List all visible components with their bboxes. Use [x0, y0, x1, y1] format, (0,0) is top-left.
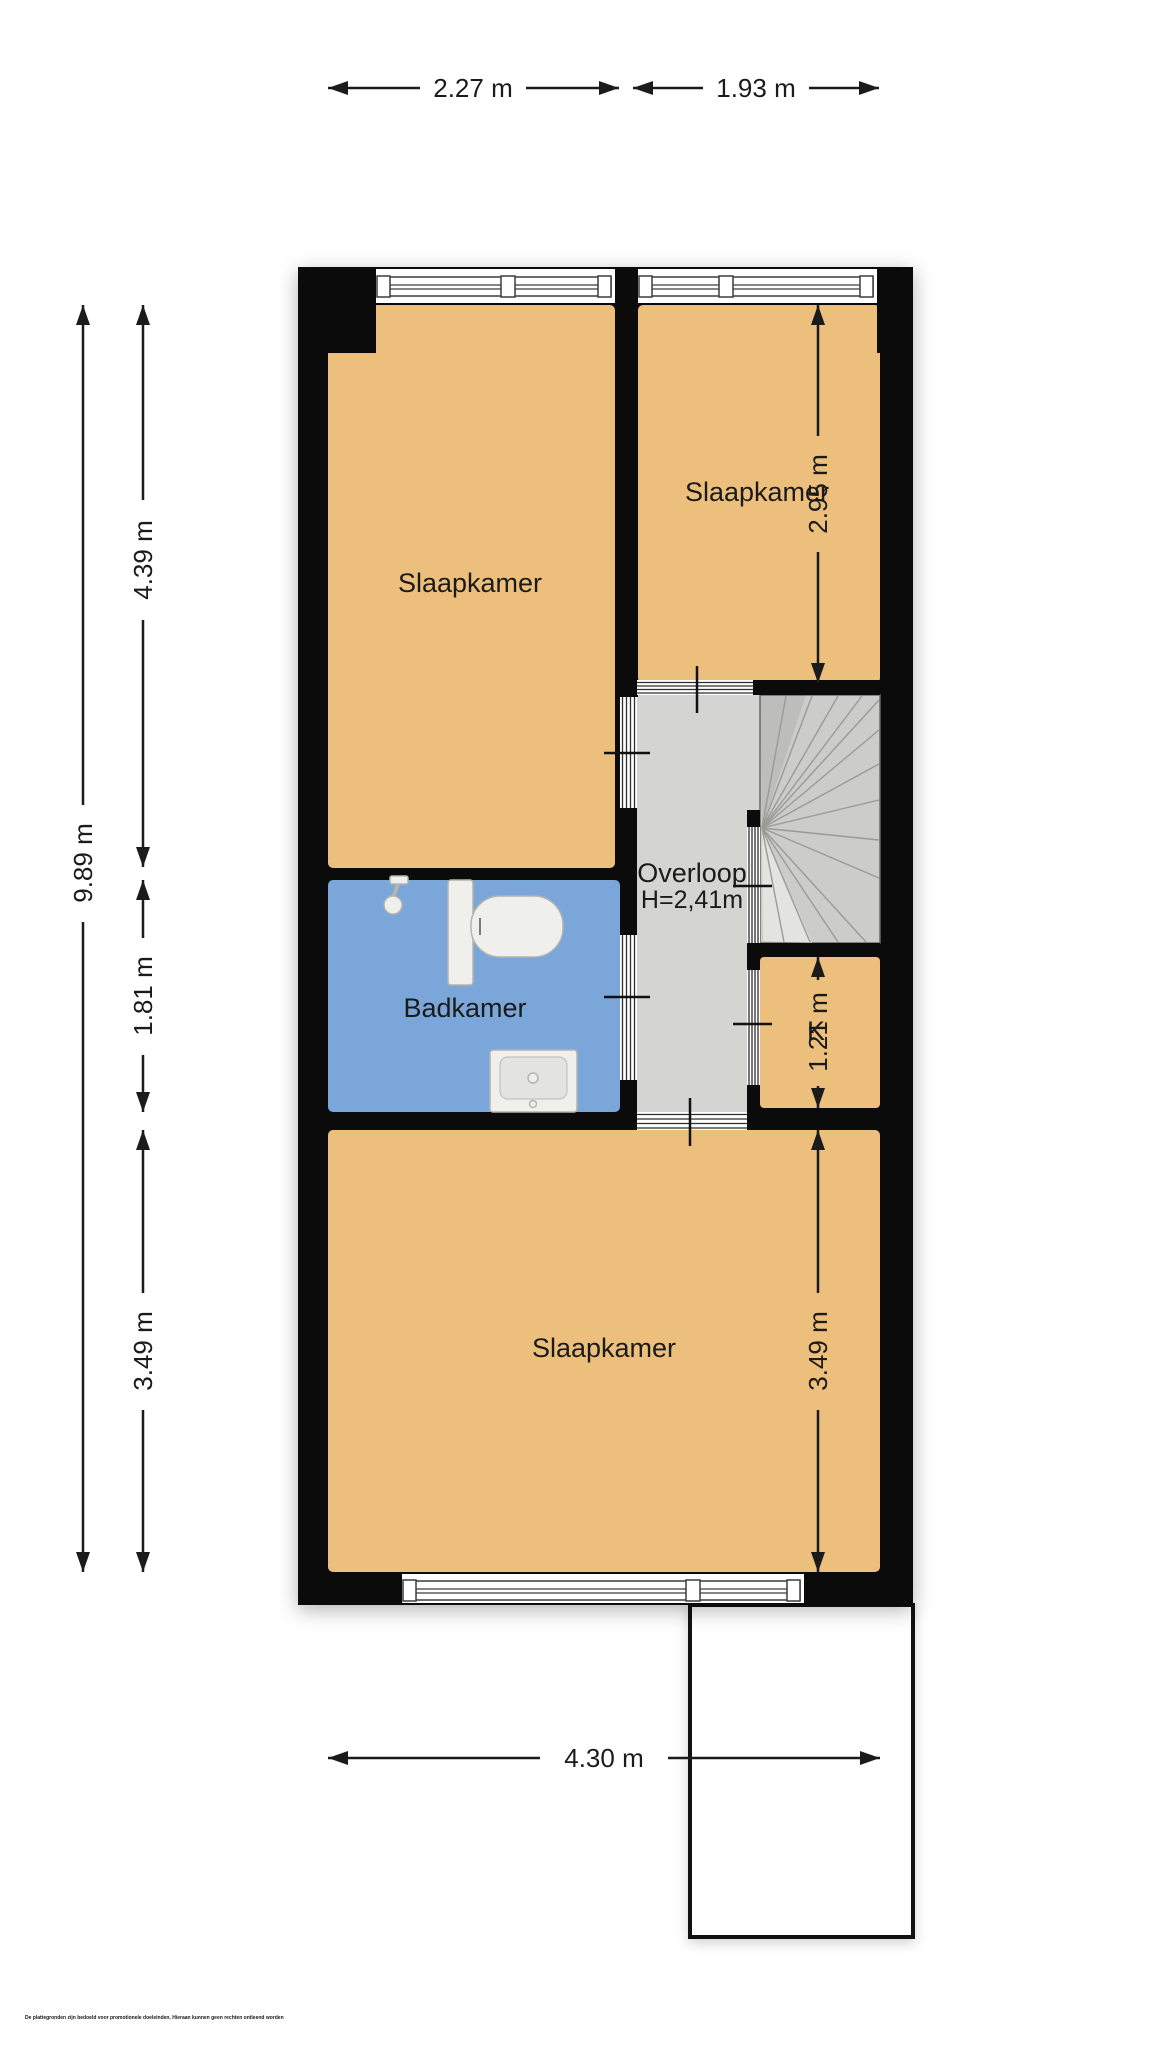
wall-bedroom-bathroom: [298, 868, 637, 880]
dim-total-height: 9.89 m: [68, 305, 98, 1572]
window-frame: [380, 277, 611, 296]
dim-label: 4.30 m: [564, 1743, 644, 1773]
dim-label: 2.95 m: [803, 454, 833, 534]
window-top-left: [376, 269, 615, 303]
label-bedroom-top-left: Slaapkamer: [398, 568, 542, 598]
corner-block-bottom-right: [810, 1572, 913, 1605]
wall-below-closet: [747, 1108, 913, 1130]
dim-top-left-width: 2.27 m: [328, 73, 619, 103]
landing-stair-opening: [747, 695, 760, 810]
window-bottom: [402, 1574, 804, 1603]
label-landing-height: H=2,41m: [641, 886, 743, 914]
dim-left-middle: 1.81 m: [128, 880, 158, 1112]
dim-left-lower: 3.49 m: [128, 1130, 158, 1572]
wall-landing-right-low: [747, 1085, 760, 1112]
wall-above-bottom-bedroom: [298, 1112, 637, 1130]
wall-landing-left-mid: [620, 808, 637, 935]
label-bedroom-bottom: Slaapkamer: [532, 1333, 676, 1363]
toilet-cistern: [448, 880, 473, 985]
window-mullion: [501, 276, 515, 297]
window-frame: [406, 1581, 800, 1600]
sink-faucet: [530, 1101, 537, 1108]
window-frame: [642, 277, 873, 296]
corner-block-bottom-left: [298, 1572, 402, 1605]
dim-label: 4.39 m: [128, 520, 158, 600]
window-mullion: [719, 276, 733, 297]
dim-label: 3.49 m: [803, 1311, 833, 1391]
window-post: [860, 276, 873, 297]
stair-newel-post: [747, 810, 760, 827]
window-post: [639, 276, 652, 297]
window-post: [598, 276, 611, 297]
dim-left-upper: 4.39 m: [128, 305, 158, 867]
dim-label: 2.27 m: [433, 73, 513, 103]
window-post: [377, 276, 390, 297]
corner-block-top-left: [298, 267, 376, 353]
window-post: [787, 1580, 800, 1601]
extension-outline: [690, 1605, 913, 1937]
window-top-right: [638, 269, 877, 303]
dim-label: 9.89 m: [68, 823, 98, 903]
disclaimer-text: De plattegronden zijn bedoeld voor promo…: [25, 2015, 284, 2021]
window-mullion: [686, 1580, 700, 1601]
toilet-bowl: [471, 896, 563, 957]
dim-label: 1.81 m: [128, 956, 158, 1036]
floor-plan: Slaapkamer Slaapkamer Overloop H=2,41m B…: [0, 0, 1152, 2048]
dim-label: 1.21 m: [803, 992, 833, 1072]
wall-stairs-closet: [747, 943, 880, 957]
wall-above-stairwell: [753, 680, 880, 695]
dim-label: 3.49 m: [128, 1311, 158, 1391]
label-landing: Overloop: [637, 858, 747, 888]
label-bathroom: Badkamer: [403, 993, 526, 1023]
window-post: [403, 1580, 416, 1601]
dim-label: 1.93 m: [716, 73, 796, 103]
stairs: [760, 695, 880, 943]
wall-between-top-bedrooms: [615, 267, 638, 697]
dim-top-right-width: 1.93 m: [633, 73, 879, 103]
corner-block-top-right: [877, 267, 913, 353]
sink: [490, 1050, 577, 1112]
sink-drain: [528, 1073, 538, 1083]
